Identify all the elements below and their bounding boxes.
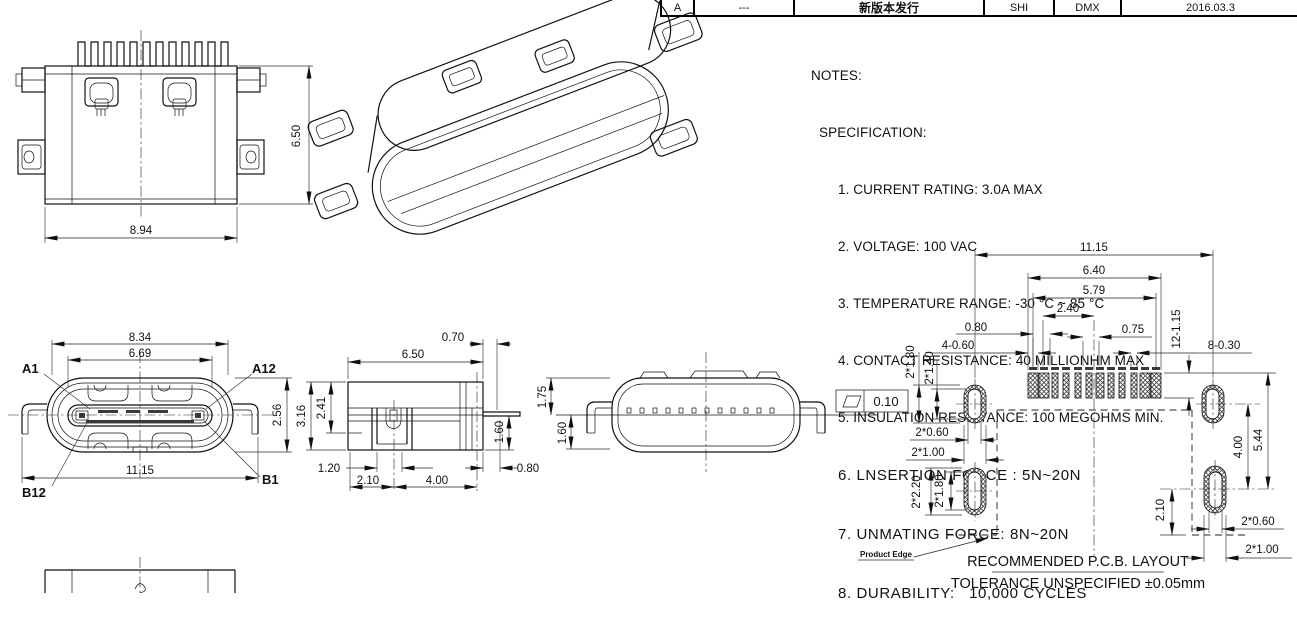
dim-label: 8.34 [129, 332, 152, 344]
dim-label: 0.70 [442, 332, 464, 344]
dim-label: 2*0.60 [1241, 516, 1274, 528]
dim-label: 6.50 [402, 349, 424, 361]
flatness-icon [843, 396, 861, 407]
contact-pad-ticks [627, 408, 774, 413]
dim-label: 4-0.60 [942, 340, 975, 352]
dim-label: 0.75 [1122, 324, 1144, 336]
pad-micro-labels [1029, 367, 1160, 370]
dim-label: 8.94 [130, 225, 153, 237]
isometric-view-drawing [286, 0, 739, 278]
dim-label: 5.79 [1083, 285, 1105, 297]
profile-view-drawing: 1.75 1.60 0.10 [537, 352, 908, 472]
dim-label: 2.41 [316, 397, 328, 419]
dim-label: 2*1.80 [905, 345, 917, 378]
pin-label-b12: B12 [22, 485, 46, 500]
dim-label: 6.40 [1083, 265, 1105, 277]
side-view-drawing: 6.50 0.70 3.16 2.41 1.60 1.20 2.10 4.00 … [296, 332, 539, 491]
dim-label: 11.15 [1080, 242, 1108, 254]
dim-label: 8-0.30 [1208, 340, 1241, 352]
dim-label: 4.00 [1233, 436, 1245, 458]
dim-label: 4.00 [426, 475, 448, 487]
partial-bottom-view [45, 557, 235, 593]
dim-label: 2*0.60 [915, 427, 948, 439]
pin-label-b1: B1 [262, 472, 279, 487]
dim-label: 1.75 [537, 386, 549, 408]
dim-label: 5.44 [1253, 428, 1265, 451]
dim-label: 0.80 [965, 322, 987, 334]
pin-label-a1: A1 [22, 361, 39, 376]
dim-label: 2*1.00 [911, 447, 944, 459]
drawing-canvas: 6.50 8.94 A1 A12 B12 B1 [0, 0, 1297, 593]
product-edge-outline [947, 410, 1246, 535]
dim-label: 2.10 [357, 475, 379, 487]
front-view-drawing: A1 A12 B12 B1 8.34 6.69 2.56 11.15 [8, 332, 292, 500]
dim-label: 2*1.80 [934, 474, 946, 507]
flatness-feature-control-frame: 0.10 [836, 390, 908, 412]
dim-label: 2.56 [272, 404, 284, 426]
dim-label: 12-1.15 [1171, 309, 1183, 348]
top-view-drawing: 6.50 8.94 [16, 30, 313, 243]
dim-label: 2.40 [1057, 303, 1079, 315]
dim-label: 3.16 [296, 405, 308, 427]
mounting-slots [964, 385, 1226, 515]
dim-label: 11.15 [126, 465, 154, 477]
dim-label: 1.60 [557, 422, 569, 444]
flatness-value: 0.10 [873, 394, 898, 409]
pcb-layout-title: RECOMMENDED P.C.B. LAYOUT [967, 554, 1189, 570]
pcb-layout-drawing: 11.15 6.40 5.79 2.40 0.80 0.75 4-0.60 8-… [858, 242, 1292, 592]
dim-label: 2*2.20 [911, 475, 923, 508]
dim-label: 0.80 [517, 463, 539, 475]
engineering-drawing-page: { "title_block": { "rev": "A", "ecn": "-… [0, 0, 1297, 593]
dim-label: 1.20 [318, 463, 340, 475]
dim-label: 6.69 [129, 348, 151, 360]
solder-pads [1028, 373, 1161, 398]
pin-label-a12: A12 [252, 361, 276, 376]
product-edge-label: Product Edge [860, 550, 913, 559]
dim-label: 6.50 [291, 125, 303, 147]
dim-label: 2*1.40 [924, 351, 936, 384]
dim-label: 2*1.00 [1245, 544, 1278, 556]
pcb-tolerance-note: TOLERANCE UNSPECIFIED ±0.05mm [951, 576, 1205, 592]
dim-label: 2.10 [1155, 499, 1167, 521]
